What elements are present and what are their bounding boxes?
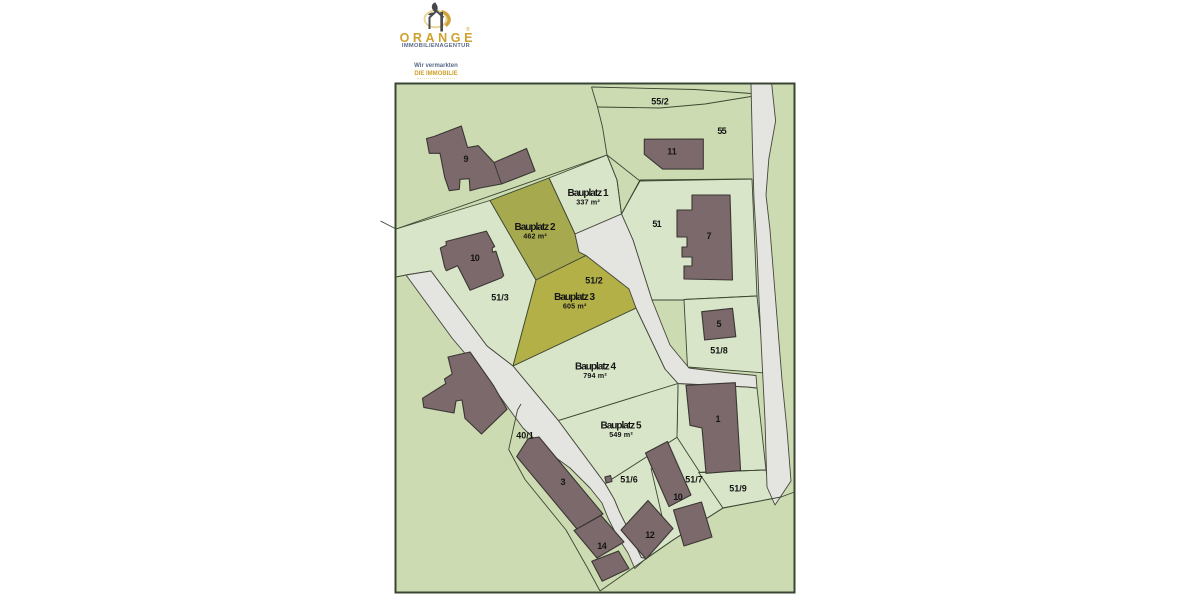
svg-text:51/7: 51/7 <box>685 475 703 485</box>
svg-text:51/8: 51/8 <box>710 346 728 356</box>
svg-text:9: 9 <box>463 154 468 164</box>
svg-text:462 m²: 462 m² <box>523 232 547 241</box>
svg-text:51/9: 51/9 <box>729 484 747 494</box>
svg-text:794 m²: 794 m² <box>583 371 607 380</box>
svg-text:605 m²: 605 m² <box>563 302 587 311</box>
svg-text:55/2: 55/2 <box>651 97 669 107</box>
svg-text:7: 7 <box>706 231 711 241</box>
svg-text:5: 5 <box>716 319 721 329</box>
svg-text:55: 55 <box>717 126 726 136</box>
svg-text:549 m²: 549 m² <box>609 430 633 439</box>
svg-text:14: 14 <box>597 541 607 551</box>
svg-text:51/6: 51/6 <box>620 475 638 485</box>
svg-text:40/1: 40/1 <box>516 431 534 441</box>
svg-text:11: 11 <box>667 147 677 157</box>
svg-text:51: 51 <box>652 219 661 229</box>
svg-text:12: 12 <box>645 530 655 540</box>
svg-text:51/2: 51/2 <box>585 276 603 286</box>
svg-text:10: 10 <box>673 492 683 502</box>
svg-text:51/3: 51/3 <box>491 293 509 303</box>
svg-text:1: 1 <box>715 414 720 424</box>
svg-text:3: 3 <box>560 477 565 487</box>
svg-text:10: 10 <box>470 253 480 263</box>
svg-text:337 m²: 337 m² <box>576 198 600 207</box>
